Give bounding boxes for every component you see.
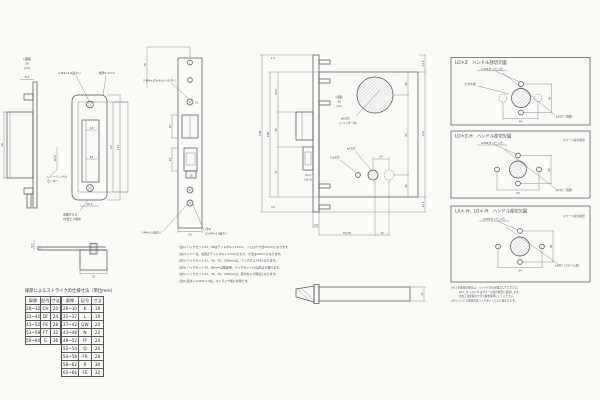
- leader-label: φ15穴（貫通）: [556, 115, 574, 119]
- note-line: 穴加工は扉面のケガキ線を基準にしてください。: [451, 294, 516, 298]
- leader-label: 2-M4×1.4皿ネジ: [58, 70, 81, 75]
- table-cell: 32: [92, 369, 104, 377]
- table-row: 62~66FE32: [62, 369, 104, 377]
- leader-label: 4-M4タッピン穴: [481, 140, 503, 145]
- table-cell: 59~64: [26, 337, 41, 345]
- table-cell: FR: [79, 353, 92, 361]
- dim-label: 113: [116, 145, 120, 151]
- dim-label: 30: [337, 100, 341, 104]
- leader-label: レバーハンドル: [47, 175, 67, 179]
- note-line: (注2) レバーは、位置がデッドボルト17mmとなり、寸法は19mmとなります。: [179, 251, 283, 256]
- table-cell: 28: [51, 321, 61, 329]
- dim-label: 76(79): [343, 231, 352, 235]
- panel-subtitle: （スチール扉の場合）: [561, 138, 587, 142]
- table-cell: 37~42: [62, 321, 79, 329]
- table-cell: 28~32: [26, 305, 41, 313]
- dim-label: 64: [516, 191, 520, 195]
- note-line: (※2) ハンドル部切欠はバックセットにより異なります。: [451, 298, 517, 302]
- table-cell: 18: [92, 305, 104, 313]
- dim-label: 38: [547, 168, 551, 172]
- table-row: 48~52FF24: [62, 337, 104, 345]
- table-cell: G: [41, 337, 51, 345]
- table-cell: 28: [92, 353, 104, 361]
- dim-label: 45: [404, 184, 408, 188]
- dim-label: (13): [336, 104, 341, 108]
- dim-label: 38: [549, 245, 553, 249]
- dim-label: 16.5: [87, 202, 93, 206]
- table-row: 54~58FR28: [62, 353, 104, 361]
- leader-label: 2-M4タッピン穴: [481, 66, 503, 71]
- leader-label: φ15穴（貫通）: [556, 188, 574, 192]
- dim-label: 21.5: [421, 60, 425, 66]
- table-cell: FK: [41, 321, 51, 329]
- table-group-b: 扉厚記号寸法26~30K1831~37L1937~42GW2043~48N224…: [61, 296, 104, 377]
- panel-title: LA＊-H、LO＊-H ハンドル部切欠図: [455, 208, 527, 215]
- table-cell: FF: [79, 337, 92, 345]
- leader-label: (注6): [205, 227, 211, 231]
- note-line: (注4) バックセット76、86mmは框扉用、バックセット(2)は右より選べます…: [179, 264, 282, 269]
- table-cell: 26: [92, 345, 104, 353]
- dim-label: 22.5: [421, 201, 425, 207]
- panel-title: LO＊Z ハンドル部切欠図: [455, 59, 507, 66]
- dim-label: 8.5: [25, 75, 30, 79]
- table-cell: 22: [92, 329, 104, 337]
- table-cell: 43~52: [26, 321, 41, 329]
- table-cell: 32: [51, 329, 61, 337]
- table-cell: GW: [79, 321, 92, 329]
- note-line: (注3) バックセット31、38、76、100mmは、フックボルト付となります。: [179, 258, 278, 263]
- dim-label: 21: [420, 292, 424, 296]
- dim-label: 54: [379, 155, 383, 159]
- table-cell: 19: [92, 313, 104, 321]
- table-cell: 寸法: [92, 297, 104, 305]
- table-cell: 30: [92, 361, 104, 369]
- leader-label: φ50穴（スチール扉）: [555, 264, 581, 268]
- table-cell: 31~37: [62, 313, 79, 321]
- table-cell: 24: [92, 337, 104, 345]
- dim-label: 64: [519, 120, 523, 124]
- drawing-sheet: C面取 30 (13) 8.5 70 36.5 レバーハンドル センター 2-M…: [0, 0, 600, 400]
- dim-label: 26: [168, 125, 172, 129]
- table-row: 37~42GW20: [62, 321, 104, 329]
- table-cell: 扉厚: [62, 297, 79, 305]
- table-row: 33~42DF24: [26, 313, 61, 321]
- dim-label: 4.5: [314, 223, 318, 227]
- leader-label: 2-φ5穴: [330, 155, 340, 160]
- leader-label: 2P皿ビス留め: [63, 216, 81, 221]
- table-group-a: 扉厚記号寸法28~32CH2033~42DF2443~52FK2853~58FT…: [25, 296, 61, 345]
- panel-title: LO＊Z-H ハンドル部切欠図: [455, 132, 511, 139]
- table-row: 58~62R30: [62, 361, 104, 369]
- dim-label: 50.5: [274, 89, 278, 95]
- dim-label: (13): [24, 66, 30, 70]
- dim-label: 1.5: [271, 56, 275, 60]
- table-cell: 52~54: [62, 345, 79, 353]
- table-cell: 48~52: [62, 337, 79, 345]
- dim-label: 26: [168, 158, 172, 162]
- note-line: (注6) 皿ネジ2-M4×1.4は、ストライク用と共用です。: [179, 278, 250, 283]
- table-cell: K: [79, 305, 92, 313]
- dim-label: 10: [195, 101, 199, 105]
- dim-label: (36.5): [304, 178, 312, 182]
- chamfer-label: C面取: [336, 95, 343, 99]
- spindle-hole-icon: [368, 170, 378, 180]
- leader-label: 2-M4×(76.4)ナベ小ネジ: [143, 78, 176, 83]
- dim-label: 14: [90, 126, 94, 130]
- note-line: (注5) バックセット31、38、76、100mmは、取付ねじが別途となります。: [179, 271, 278, 276]
- table-cell: 20: [51, 305, 61, 313]
- dim-label: 48: [404, 82, 408, 86]
- table-cell: 20: [92, 321, 104, 329]
- table-cell: 記号: [41, 297, 51, 305]
- table-cell: R: [79, 361, 92, 369]
- leader-label: 4-M4タッピン穴: [483, 216, 505, 221]
- table-cell: N: [79, 329, 92, 337]
- dim-label: 25: [188, 233, 192, 237]
- table-cell: 寸法: [51, 297, 61, 305]
- dim-label: 13: [380, 231, 384, 235]
- dim-label: 30: [25, 62, 29, 66]
- dim-label: 80: [404, 133, 408, 137]
- table-cell: CH: [41, 305, 51, 313]
- dim-label: 36.5: [53, 155, 57, 162]
- table-row: 52~54Q26: [62, 345, 104, 353]
- leader-label: (2)-M4×1.4皿ネジ: [205, 232, 228, 236]
- dim-label: 83: [109, 145, 113, 149]
- leader-label: 扉面ぞろえ: [63, 212, 78, 217]
- table-row: 43~48N22: [62, 329, 104, 337]
- table-title: 扉厚によるストライクの仕様寸法（単位mm）: [25, 288, 115, 294]
- strike-spec-table: 扉厚によるストライクの仕様寸法（単位mm） 扉厚記号寸法28~32CH2033~…: [25, 288, 115, 377]
- table-cell: 43~48: [62, 329, 79, 337]
- handle-hole-icon: [512, 89, 531, 108]
- note-line: (注1) バックセット31、38はデッドボルト17mm、トロヨケ寸法25mmとな…: [179, 244, 291, 249]
- table-cell: Q: [79, 345, 92, 353]
- table-cell: 24: [51, 313, 61, 321]
- table-row: 扉厚記号寸法: [26, 297, 61, 305]
- dim-label: 70: [0, 143, 4, 147]
- dim-label: 51: [274, 170, 278, 174]
- table-cell: 36: [51, 337, 61, 345]
- table-cell: 58~62: [62, 361, 79, 369]
- note-line: (※1) 木製扉の場合は、ハンドル穴のみ加工してください。: [451, 286, 520, 290]
- table-row: 59~64G36: [26, 337, 61, 345]
- table-cell: 33~42: [26, 313, 41, 321]
- dim-label: 150: [266, 132, 270, 138]
- dim-label: 178: [258, 131, 262, 137]
- cylinder-hole-icon: [357, 77, 393, 113]
- table-row: 53~58FT32: [26, 329, 61, 337]
- table-row: 26~30K18: [62, 305, 104, 313]
- leader-label: 2-M4×1.4皿ネジ: [141, 231, 162, 235]
- leader-label: 板厚1.2mm: [99, 70, 115, 75]
- dim-label: 174: [421, 131, 425, 137]
- dim-label: 16: [189, 174, 193, 178]
- table-cell: FE: [79, 369, 92, 377]
- dim-label: 16: [90, 155, 94, 159]
- dim-label: 38: [274, 128, 278, 132]
- dim-label: 4.5: [271, 205, 275, 209]
- table-cell: 扉厚: [26, 297, 41, 305]
- table-cell: 54~58: [62, 353, 79, 361]
- table-cell: L: [79, 313, 92, 321]
- leader-label: φ15穴: [347, 146, 356, 151]
- panel-subtitle: （スチール扉の場合）: [561, 214, 587, 218]
- chamfer-label: C面取: [23, 57, 31, 61]
- leader-label: ケガキ線: [464, 81, 476, 86]
- leader-label: φ50穴: [341, 116, 350, 121]
- note-line: LO＊-H、LA＊-H はスチール扉の場合に使用します。: [451, 290, 521, 294]
- leader-label: (シリンダー用): [339, 121, 357, 125]
- table-cell: FT: [41, 329, 51, 337]
- handle-hole-icon: [510, 161, 527, 178]
- handle-hole-icon: [511, 237, 530, 256]
- table-row: 扉厚記号寸法: [62, 297, 104, 305]
- dim-label: 64: [518, 268, 522, 272]
- table-cell: 62~66: [62, 369, 79, 377]
- dim-label: 16: [143, 63, 147, 67]
- table-cell: 記号: [79, 297, 92, 305]
- table-cell: 53~58: [26, 329, 41, 337]
- dim-label: 38: [547, 97, 551, 101]
- table-row: 28~32CH20: [26, 305, 61, 313]
- leader-label: センター: [47, 178, 59, 183]
- table-row: 31~37L19: [62, 313, 104, 321]
- dim-label: 21.5: [305, 173, 311, 177]
- dim-label: 24: [92, 275, 96, 279]
- table-cell: 26~30: [62, 305, 79, 313]
- table-cell: DF: [41, 313, 51, 321]
- dim-label: 8.5: [30, 243, 34, 247]
- table-row: 43~52FK28: [26, 321, 61, 329]
